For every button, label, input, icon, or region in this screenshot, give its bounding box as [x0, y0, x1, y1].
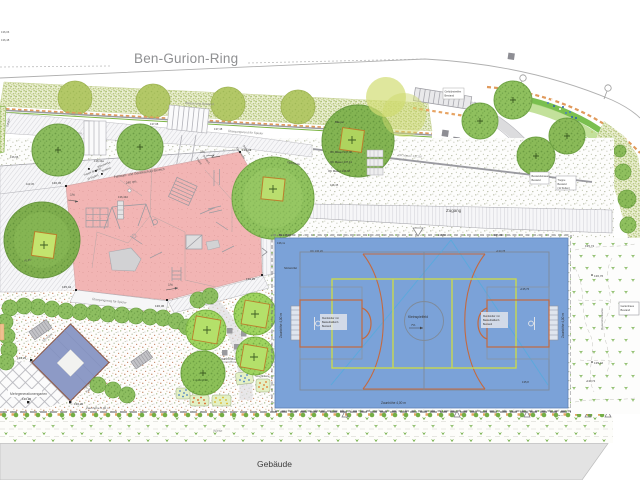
svg-text:Wiese: Wiese	[213, 429, 223, 433]
svg-text:137,48: 137,48	[214, 127, 223, 131]
svg-text:136,96: 136,96	[10, 155, 19, 159]
svg-text:Basketballkorb: Basketballkorb	[483, 319, 500, 322]
svg-text:1%: 1%	[200, 150, 205, 154]
svg-text:136,48: 136,48	[1, 38, 10, 42]
svg-text:Basketballkorb: Basketballkorb	[322, 321, 339, 324]
svg-text:136,43d: 136,43d	[118, 195, 128, 199]
svg-text:136,1x: 136,1x	[277, 241, 286, 245]
svg-text:1%: 1%	[168, 283, 173, 287]
svg-text:1%: 1%	[70, 193, 75, 197]
svg-text:136,76: 136,76	[594, 274, 604, 278]
svg-text:136,26: 136,26	[246, 277, 256, 281]
svg-text:Ben-Gurion-Ring: Ben-Gurion-Ring	[134, 51, 238, 66]
svg-text:Treppe: Treppe	[558, 179, 566, 182]
svg-text:Zaunhöhe 4,00 m: Zaunhöhe 4,00 m	[561, 313, 565, 338]
svg-text:136,36: 136,36	[155, 304, 165, 308]
svg-text:Gebäude: Gebäude	[257, 459, 292, 469]
svg-text:Kleinspielfeld: Kleinspielfeld	[408, 315, 428, 319]
svg-text:OK 136,26: OK 136,26	[310, 249, 323, 253]
svg-text:Bestand: Bestand	[532, 179, 542, 182]
svg-text:Kleinfeldtor mit: Kleinfeldtor mit	[483, 315, 500, 318]
svg-text:Bäume: Bäume	[335, 120, 344, 124]
svg-text:Gehölzstreifen: Gehölzstreifen	[445, 90, 462, 94]
svg-text:Bestand: Bestand	[445, 94, 455, 98]
svg-text:7%: 7%	[411, 323, 416, 327]
svg-text:Bestand: Bestand	[621, 308, 631, 312]
svg-text:Zaunhöhe 2,00 m: Zaunhöhe 2,00 m	[86, 406, 110, 410]
svg-text:135,44: 135,44	[62, 285, 72, 289]
svg-text:Bestand: Bestand	[322, 325, 332, 328]
svg-text:Zaunhöhe 4,00 m: Zaunhöhe 4,00 m	[279, 313, 283, 338]
svg-text:Mehrgenerationengarten: Mehrgenerationengarten	[10, 392, 47, 396]
svg-text:OK Mauer 136,98: OK Mauer 136,98	[328, 169, 351, 173]
svg-text:OK Mauer 137,40: OK Mauer 137,40	[330, 150, 353, 154]
svg-text:OK Mauer 137,11: OK Mauer 137,11	[330, 160, 352, 164]
svg-text:Rasenmähkante: Rasenmähkante	[600, 308, 604, 330]
svg-text:136,45: 136,45	[330, 183, 339, 187]
svg-text:110,45: 110,45	[26, 182, 35, 186]
svg-text:Sitzwürfel: Sitzwürfel	[284, 266, 297, 270]
svg-text:Zaunhöhe 4,00 m: Zaunhöhe 4,00 m	[381, 401, 406, 405]
svg-text:136,06: 136,06	[1, 30, 10, 34]
svg-text:Bestandsmauer: Bestandsmauer	[532, 175, 550, 178]
svg-text:136,26: 136,26	[17, 356, 27, 360]
svg-text:135,16: 135,16	[594, 361, 604, 365]
svg-text:▪135,76: ▪135,76	[520, 287, 530, 291]
svg-text:▪133,78: ▪133,78	[496, 249, 506, 253]
svg-text:Bk 136,26: Bk 136,26	[279, 233, 292, 237]
svg-text:136,26: 136,26	[22, 397, 32, 401]
svg-text:▪133,74: ▪133,74	[586, 379, 596, 383]
svg-text:Bestand: Bestand	[483, 323, 493, 326]
svg-text:136,43a: 136,43a	[94, 159, 104, 163]
svg-text:Kleinfeldtor mit: Kleinfeldtor mit	[322, 317, 339, 320]
svg-text:Gartenhaus: Gartenhaus	[621, 304, 635, 308]
svg-text:137,08: 137,08	[150, 122, 159, 126]
svg-text:136,45: 136,45	[52, 181, 62, 185]
svg-text:135,8: 135,8	[522, 380, 529, 384]
svg-text:+ Aufenthalt: + Aufenthalt	[193, 378, 208, 382]
svg-text:136,53: 136,53	[438, 233, 447, 237]
svg-text:Bestand: Bestand	[558, 183, 568, 186]
svg-text:136,30: 136,30	[74, 402, 84, 406]
svg-text:Zugang: Zugang	[446, 208, 462, 213]
svg-text:136,86: 136,86	[494, 233, 503, 237]
svg-text:135,74: 135,74	[585, 244, 595, 248]
svg-text:(11 Stufen): (11 Stufen)	[558, 187, 570, 190]
